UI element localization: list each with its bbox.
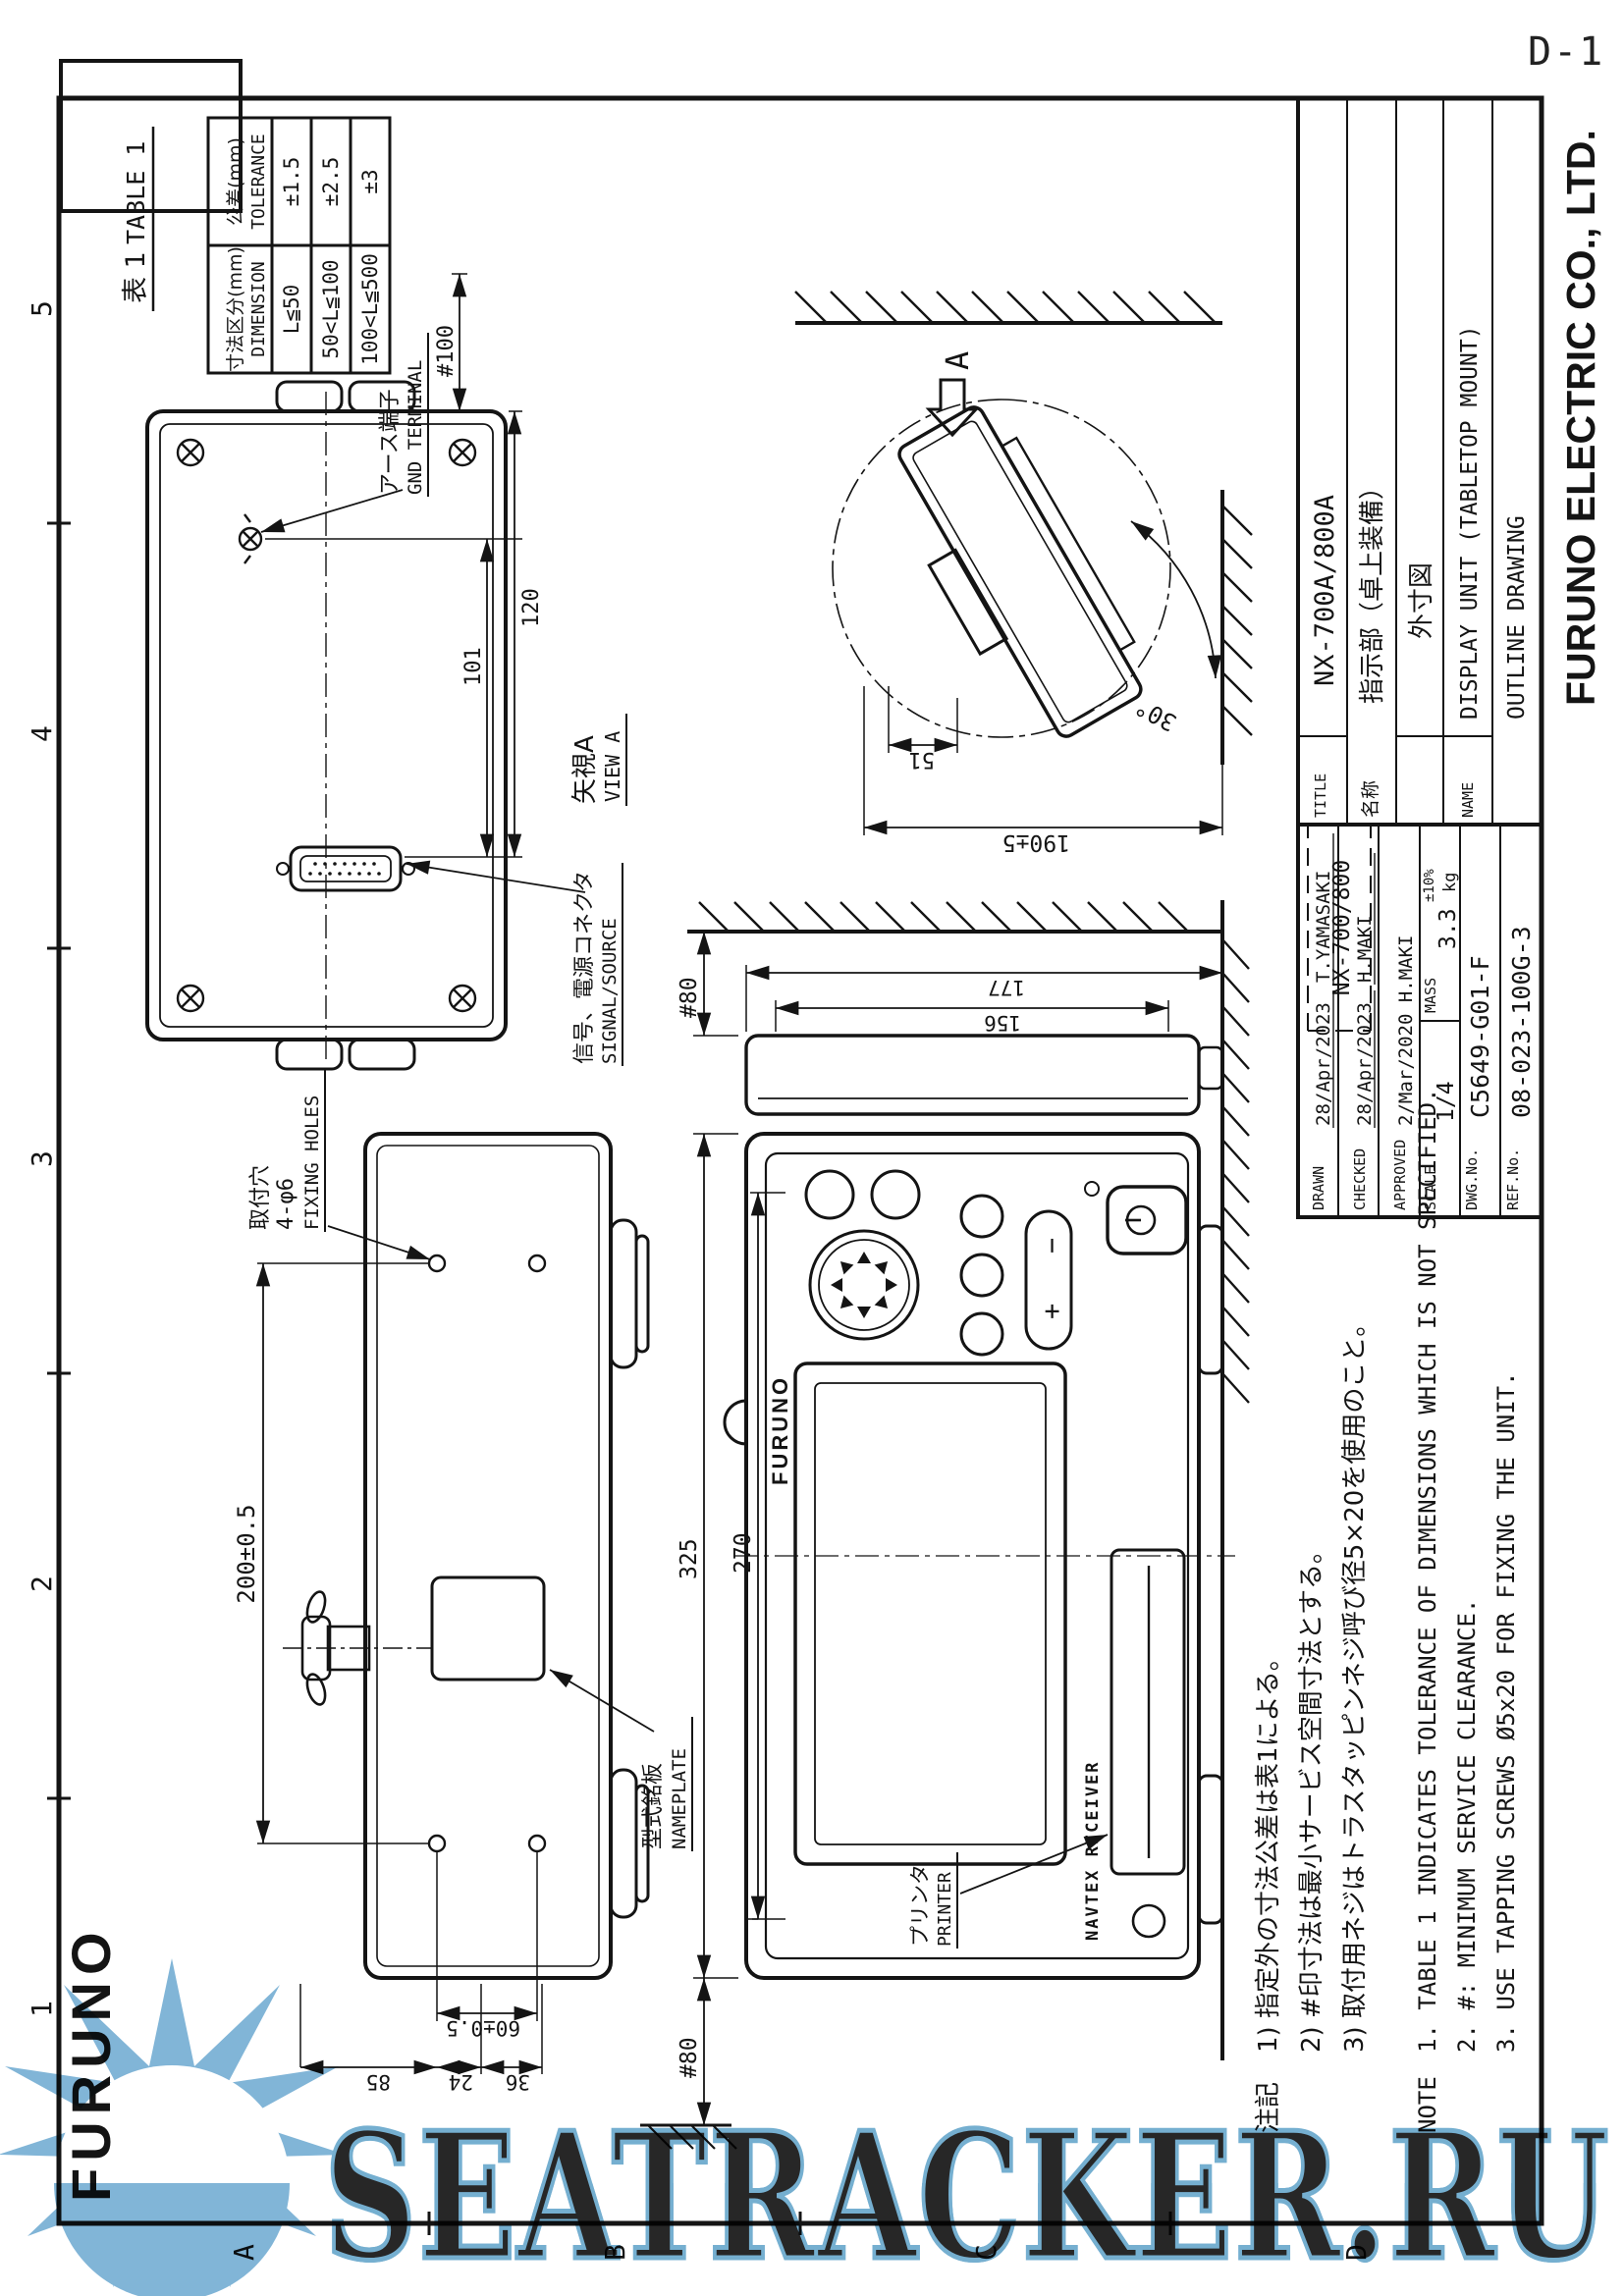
nameplate-label: 型式銘板 NAMEPLATE xyxy=(550,1670,692,1851)
corner-box xyxy=(61,61,241,211)
note-jp-3: 3) 取付用ネジはトラスタッピンネジ呼び径5×20を使用のこと。 xyxy=(1340,1311,1370,2053)
title-block: NX-700/800 DRAWN CHECKED APPROVED SCALE … xyxy=(1298,98,1603,1217)
name-label: NAME xyxy=(1459,782,1477,818)
dim-101: 101 xyxy=(461,647,486,686)
table1-col-tol-jp: 公差(mm) xyxy=(225,137,246,226)
name-jp-value2: 外寸図 xyxy=(1407,562,1436,639)
power-key xyxy=(1108,1187,1186,1254)
side-mount-view: A 30° 190±5 51 xyxy=(795,292,1252,855)
swivel-arc xyxy=(833,400,1170,737)
grid-col-3: 3 xyxy=(26,1150,58,1167)
scale-label: SCALE xyxy=(1422,1166,1439,1210)
drawn-label: DRAWN xyxy=(1310,1166,1327,1210)
right-wall-hatch xyxy=(699,902,1188,932)
side-profile xyxy=(746,1036,1222,1114)
view-a-caption-en: VIEW A xyxy=(601,731,624,802)
left-hatch xyxy=(648,2125,736,2149)
printer-button xyxy=(1133,1905,1164,1937)
grid-labels: 1 2 3 4 5 A B C D xyxy=(26,300,1373,2261)
grid-col-5: 5 xyxy=(26,300,58,317)
dim-325: 325 xyxy=(677,1538,702,1579)
nameplate xyxy=(432,1577,544,1680)
company-name: FURUNO ELECTRIC CO., LTD. xyxy=(1558,130,1603,706)
key-round-3 xyxy=(961,1313,1002,1355)
dwg-label: DWG.No. xyxy=(1463,1148,1481,1210)
key-round-1 xyxy=(806,1171,853,1218)
printer-label-jp: プリンタ xyxy=(908,1864,932,1947)
gnd-label: アース端子 GND TERMINAL xyxy=(261,333,428,532)
arrow-a-label: A xyxy=(939,351,976,370)
span-dim: 200±0.5 xyxy=(233,1263,429,1843)
fixing-label-jp: 取付穴 xyxy=(248,1165,273,1230)
note-en-3: 3. USE TAPPING SCREWS Ø5x20 FOR FIXING T… xyxy=(1492,1371,1520,2053)
grid-row-c: C xyxy=(970,2244,1002,2261)
table1-r2-dim: 50<L≦100 xyxy=(319,259,343,358)
dim-60: 60±0.5 xyxy=(446,2016,520,2040)
product-name: NAVTEX RECEIVER xyxy=(1083,1760,1103,1941)
table1-col-dim-jp: 寸法区分(mm) xyxy=(225,246,246,372)
table1-r3-tol: ±3 xyxy=(358,169,382,193)
signal-label-en: SIGNAL/SOURCE xyxy=(599,918,621,1064)
table-hatch xyxy=(1222,506,1252,735)
drawn-date: 28/Apr/2023 xyxy=(1313,1002,1334,1126)
fixing-label-en: FIXING HOLES xyxy=(301,1095,323,1230)
notes-jp-label: 注記 xyxy=(1254,2082,1283,2133)
keypad xyxy=(806,1171,1186,1355)
dim-270: 270 xyxy=(731,1532,756,1574)
panel-brand: FURUNO xyxy=(768,1375,792,1485)
dim-177: 177 xyxy=(988,976,1025,999)
view-a-caption-jp: 矢視A xyxy=(570,735,600,804)
mass-unit: kg xyxy=(1440,873,1460,892)
name-jp-label: 名称 xyxy=(1360,780,1381,818)
note-en-2: 2. #: MINIMUM SERVICE CLEARANCE. xyxy=(1453,1599,1481,2053)
table1-r1-tol: ±1.5 xyxy=(280,157,303,207)
key-round-5 xyxy=(961,1196,1002,1237)
dim-30deg: 30° xyxy=(1130,692,1180,736)
checked-name: H.MAKI xyxy=(1354,915,1376,983)
display-window xyxy=(795,1363,1065,1864)
note-en-1: 1. TABLE 1 INDICATES TOLERANCE OF DIMENS… xyxy=(1414,1088,1441,2053)
front-feet xyxy=(1199,1226,1222,1923)
dim-80-left: #80 xyxy=(677,2037,702,2078)
gnd-label-jp: アース端子 xyxy=(378,389,403,495)
title-label: TITLE xyxy=(1312,774,1329,818)
note-jp-2: 2) #印寸法は最小サービス空間寸法とする。 xyxy=(1297,1538,1326,2053)
cursor-arrows xyxy=(831,1252,897,1318)
printer-slot xyxy=(1111,1550,1184,1937)
ref-value: 08-023-100G-3 xyxy=(1507,926,1536,1118)
tolerance-table: 表 1 TABLE 1 寸法区分(mm) DIMENSION 公差(mm) TO… xyxy=(121,118,390,373)
cursor-pad xyxy=(810,1231,918,1339)
dim-120: 120 xyxy=(519,588,544,627)
dim-51: 51 xyxy=(909,747,936,772)
grid-col-2: 2 xyxy=(26,1575,58,1592)
wall-hatch xyxy=(795,292,1216,323)
mass-tol: ±10% xyxy=(1422,869,1437,902)
profile-dims: 156 177 xyxy=(746,965,1222,1035)
volume-rocker xyxy=(1026,1211,1071,1349)
table1-r3-dim: 100<L≦500 xyxy=(358,253,382,365)
note-jp-1: 1) 指定外の寸法公差は表1による。 xyxy=(1254,1645,1283,2053)
drawing-page: 1 2 3 4 5 A B C D FURUNO 表 1 TABLE 1 寸法区… xyxy=(0,0,1624,2296)
dim-156: 156 xyxy=(984,1011,1021,1035)
grid-col-1: 1 xyxy=(26,2001,58,2017)
drawn-name: T.YAMASAKI xyxy=(1313,871,1334,983)
table1-r2-tol: ±2.5 xyxy=(319,157,343,207)
dwg-value: C5649-G01-F xyxy=(1466,955,1494,1118)
nameplate-label-en: NAMEPLATE xyxy=(669,1748,690,1849)
key-minus-label: − xyxy=(1037,1238,1067,1254)
top-view: 200±0.5 60±0.5 85 24 36 取付穴 4-φ6 xyxy=(233,1069,692,2094)
checked-label: CHECKED xyxy=(1351,1148,1369,1210)
dim-100: #100 xyxy=(434,325,459,377)
scale-value: 1/4 xyxy=(1434,1081,1459,1122)
dim-190: 190±5 xyxy=(1002,829,1070,855)
pitch-dim: 60±0.5 xyxy=(437,1851,537,2040)
front-view: FURUNO NAVTEX RECEIVER xyxy=(640,900,1249,2149)
tilted-unit xyxy=(871,396,1159,754)
fixing-holes-label: 取付穴 4-φ6 FIXING HOLES xyxy=(248,1069,430,1259)
fixing-holes xyxy=(429,1255,545,1851)
signal-label-jp: 信号、電源コネクタ xyxy=(572,871,597,1064)
name-value2: OUTLINE DRAWING xyxy=(1504,515,1530,720)
mass-label: MASS xyxy=(1422,978,1439,1013)
gnd-label-en: GND TERMINAL xyxy=(405,360,426,495)
bracket-knob xyxy=(725,1401,746,1444)
angle-dim: 30° xyxy=(1130,521,1216,736)
fixing-label-spec: 4-φ6 xyxy=(274,1178,298,1230)
ref-label: REF.No. xyxy=(1504,1148,1522,1210)
approved-value: 2/Mar/2020 H.MAKI xyxy=(1395,935,1417,1126)
printer-label-en: PRINTER xyxy=(935,1872,955,1947)
key-plus-label: + xyxy=(1037,1304,1067,1319)
dim-200: 200±0.5 xyxy=(233,1504,260,1603)
dim-36: 36 xyxy=(506,2070,530,2094)
title-value: NX-700A/800A xyxy=(1310,495,1340,686)
dsub-connector xyxy=(277,847,414,890)
indicator-led xyxy=(1085,1182,1099,1196)
mass-value: 3.3 xyxy=(1435,908,1461,949)
sheet-ref-label: D-1 xyxy=(1528,29,1604,75)
table1-title-en: TABLE 1 xyxy=(122,141,150,244)
checked-date: 28/Apr/2023 xyxy=(1354,1002,1376,1126)
view-a-caption: 矢視A VIEW A xyxy=(570,714,626,806)
furuno-logo: FURUNO xyxy=(60,1925,122,2202)
notes-en-label: NOTE xyxy=(1414,2076,1441,2133)
dim-24: 24 xyxy=(449,2070,473,2094)
grid-col-4: 4 xyxy=(26,725,58,742)
nameplate-label-jp: 型式銘板 xyxy=(641,1763,666,1849)
name-value: DISPLAY UNIT (TABLETOP MOUNT) xyxy=(1457,325,1483,720)
key-round-2 xyxy=(872,1171,919,1218)
table1-title: 表 1 xyxy=(121,251,151,303)
view-a-rear-view: アース端子 GND TERMINAL 信号、電源コネクタ SIGNAL/SOUR… xyxy=(147,274,626,1069)
table1-r1-dim: L≦50 xyxy=(280,285,303,335)
grid-row-d: D xyxy=(1340,2244,1373,2261)
landscape-drawing: 1 2 3 4 5 A B C D FURUNO 表 1 TABLE 1 寸法区… xyxy=(0,0,1624,2296)
name-jp-value: 指示部（卓上装備） xyxy=(1358,474,1387,704)
cable-gland xyxy=(283,1589,432,1706)
dim-80-right: #80 xyxy=(677,977,702,1018)
notes: 注記 1) 指定外の寸法公差は表1による。 2) #印寸法は最小サービス空間寸法… xyxy=(1254,1088,1520,2133)
key-round-4 xyxy=(961,1255,1002,1296)
dim-85: 85 xyxy=(366,2070,391,2094)
desk-hatch xyxy=(1222,939,1249,1403)
grid-row-b: B xyxy=(599,2244,631,2261)
printer-label: プリンタ PRINTER xyxy=(908,1835,1108,1949)
front-top-dims: #80 325 #80 270 xyxy=(677,932,785,2125)
table1-col-dim-en: DIMENSION xyxy=(248,261,269,357)
signal-label: 信号、電源コネクタ SIGNAL/SOURCE xyxy=(406,863,623,1066)
table1-col-tol-en: TOLERANCE xyxy=(248,133,269,230)
grid-row-a: A xyxy=(228,2244,260,2261)
gnd-terminal xyxy=(240,514,261,563)
approved-label: APPROVED xyxy=(1391,1140,1409,1210)
